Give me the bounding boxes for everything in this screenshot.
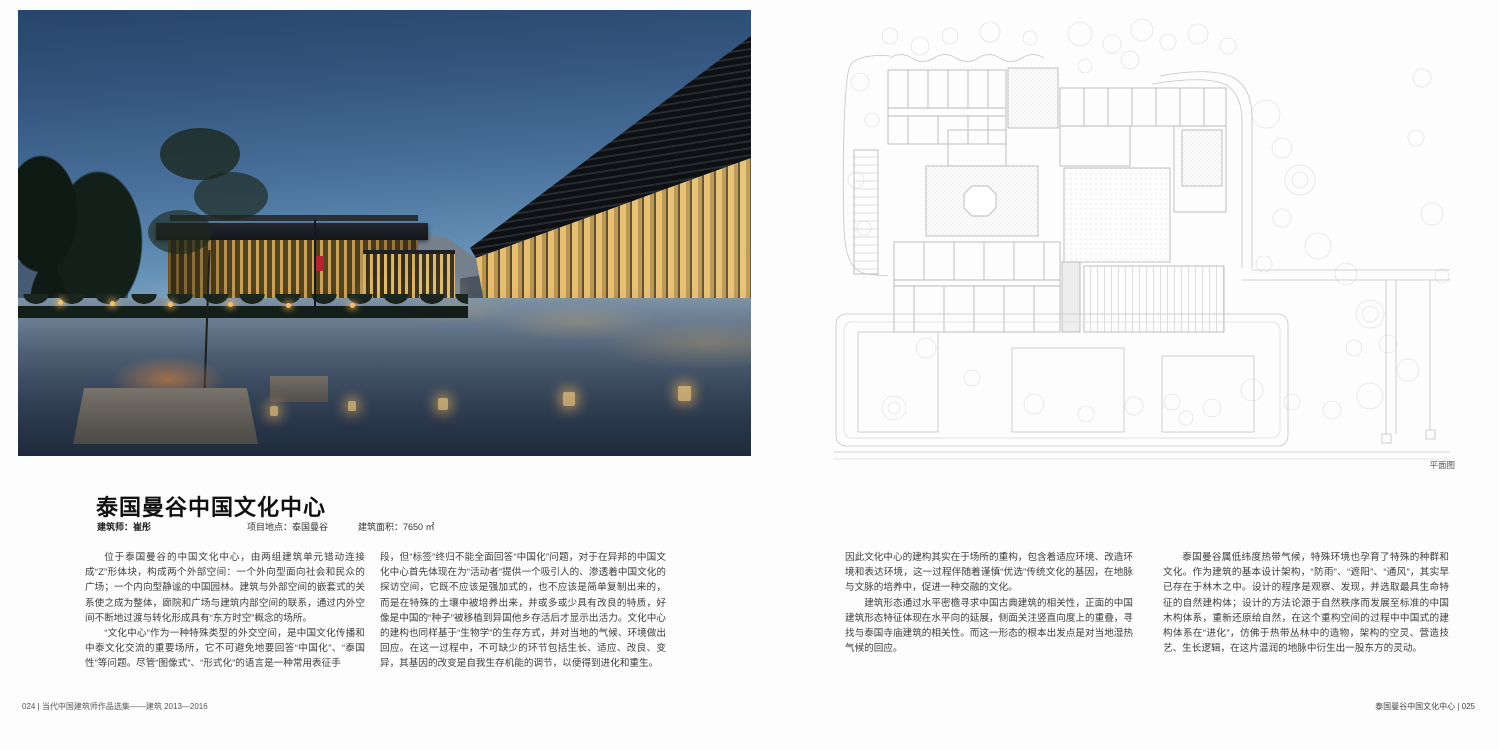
folio-right: 泰国曼谷中国文化中心 | 025 [1375, 701, 1475, 712]
architect-label: 建筑师：崔彤 [97, 520, 151, 533]
plan-buildings [854, 68, 1226, 332]
text-column-3: 因此文化中心的建构其实在于场所的重构，包含着适应环境、改造环境和表达环境，这一过… [845, 550, 1133, 656]
paragraph: “文化中心”作为一种特殊类型的外交空间，是中国文化传播和中泰文化交流的重要场所，… [85, 626, 365, 672]
plan-lower-plots [836, 314, 1288, 446]
photo-vignette [18, 10, 751, 456]
paragraph: 建筑形态通过水平密檐寻求中国古典建筑的相关性，正面的中国建筑形态特征体现在水平向… [845, 596, 1133, 657]
site-plan-drawing [830, 18, 1455, 460]
text-column-4: 泰国曼谷属低纬度热带气候，特殊环境也孕育了特殊的种群和文化。作为建筑的基本设计架… [1163, 550, 1449, 656]
text-column-2: 段，但“标签”终归不能全面回答“中国化”问题，对于在异邦的中国文化中心首先体现在… [380, 550, 666, 672]
paragraph: 段，但“标签”终归不能全面回答“中国化”问题，对于在异邦的中国文化中心首先体现在… [380, 550, 666, 672]
paragraph: 泰国曼谷属低纬度热带气候，特殊环境也孕育了特殊的种群和文化。作为建筑的基本设计架… [1163, 550, 1449, 656]
folio-left: 024 | 当代中国建筑师作品选集——建筑 2013—2016 [22, 701, 208, 712]
project-location-label: 项目地点：泰国曼谷 [247, 520, 328, 533]
building-area-label: 建筑面积：7650 ㎡ [358, 520, 435, 533]
building-photo [18, 10, 751, 456]
plan-caption: 平面图 [1375, 459, 1455, 471]
paragraph: 位于泰国曼谷的中国文化中心，由两组建筑单元错动连接成“Z”形体块，构成两个外部空… [85, 550, 365, 626]
text-column-1: 位于泰国曼谷的中国文化中心，由两组建筑单元错动连接成“Z”形体块，构成两个外部空… [85, 550, 365, 672]
paragraph: 因此文化中心的建构其实在于场所的重构，包含着适应环境、改造环境和表达环境，这一过… [845, 550, 1133, 596]
page-title: 泰国曼谷中国文化中心 [96, 490, 326, 522]
